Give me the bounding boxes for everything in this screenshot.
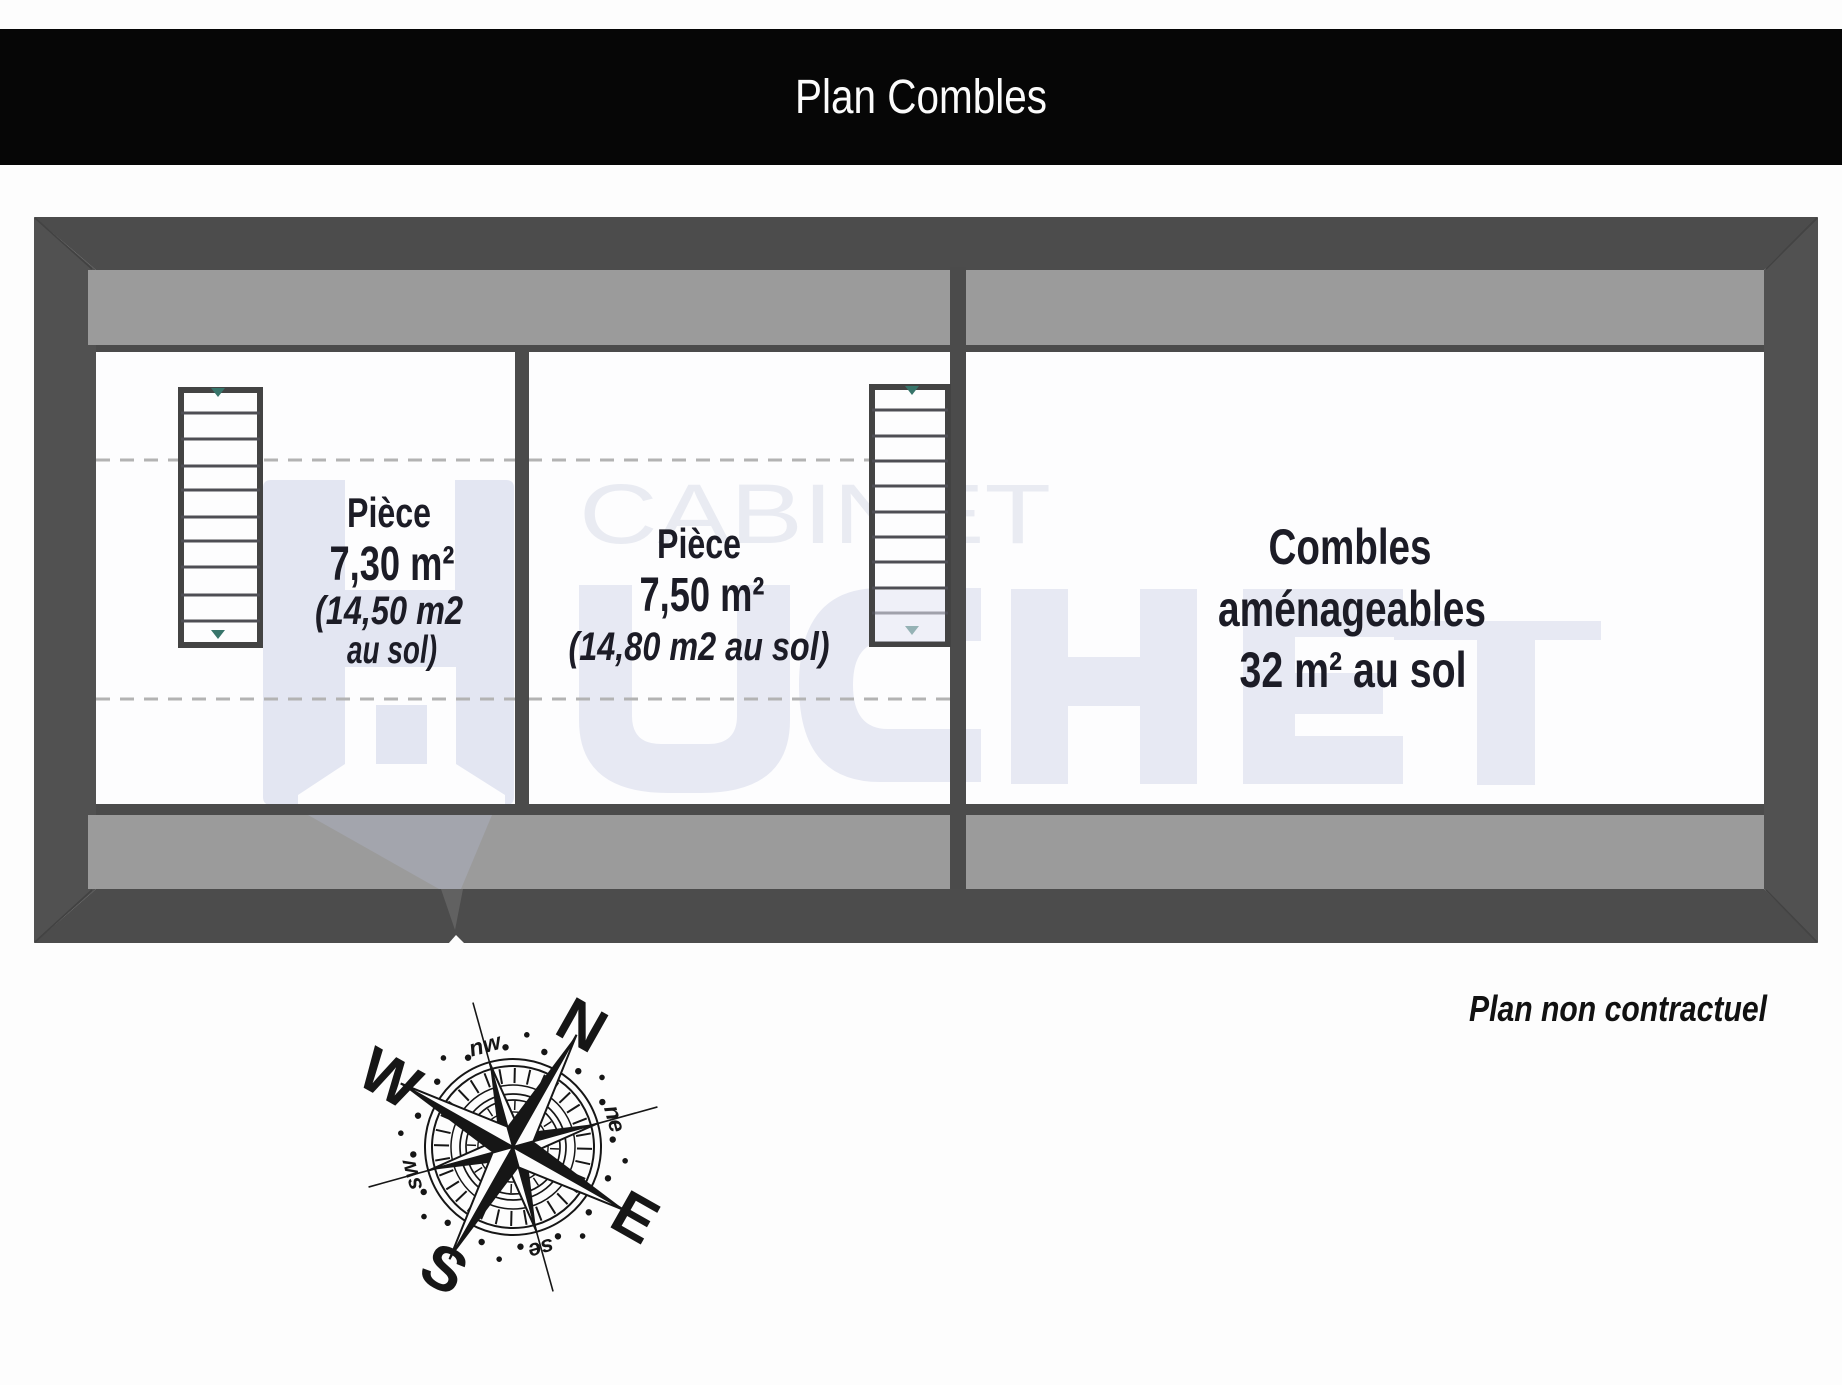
svg-text:Plan non contractuel: Plan non contractuel (1469, 988, 1768, 1029)
svg-text:Plan Combles: Plan Combles (795, 71, 1047, 124)
svg-text:Combles: Combles (1269, 519, 1432, 575)
svg-text:(14,50 m2: (14,50 m2 (315, 589, 463, 633)
svg-text:7,50 m²: 7,50 m² (640, 569, 765, 622)
svg-text:aménageables: aménageables (1218, 581, 1486, 637)
svg-text:(14,80 m2 au sol): (14,80 m2 au sol) (569, 625, 830, 669)
svg-text:au sol): au sol) (347, 629, 437, 672)
svg-text:CABINET: CABINET (579, 467, 1051, 561)
svg-text:Pièce: Pièce (657, 520, 741, 567)
svg-text:7,30 m²: 7,30 m² (330, 538, 455, 591)
svg-text:32 m² au sol: 32 m² au sol (1240, 642, 1467, 698)
svg-text:Pièce: Pièce (347, 489, 431, 536)
